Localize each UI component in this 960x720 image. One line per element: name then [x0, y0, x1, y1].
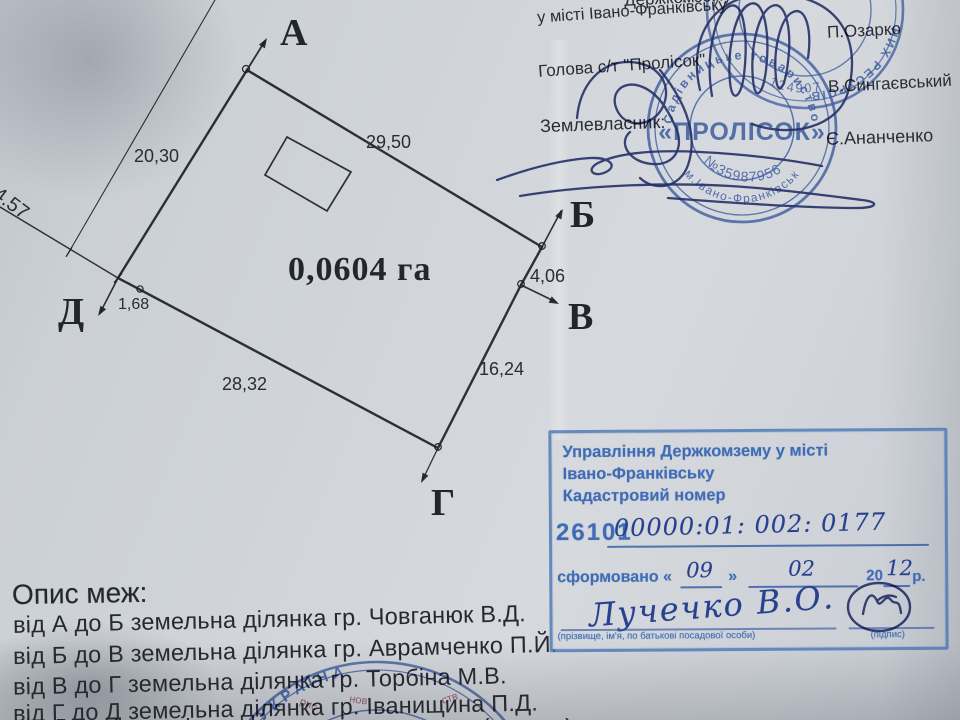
bottom-seal-country-text: УКРАЇНА: [254, 663, 350, 720]
bottom-seal-fragment-1: рис: [298, 696, 319, 714]
ink-signatures: [497, 0, 910, 631]
svg-text:УКРАЇНА: УКРАЇНА: [254, 663, 350, 720]
seal-bottom-partial: УКРАЇНА рис нов ств: [209, 662, 545, 720]
stamps-and-signatures: Садівницьке товариство м.Івано-Франківсь…: [0, 0, 960, 720]
initials-scribble: [863, 595, 901, 614]
bottom-seal-fragment-2: нов: [349, 693, 369, 707]
scanned-land-survey-document: А Б В Г Д 20,30 29,50 4,06 16,24 28,32 1…: [0, 0, 960, 720]
seal-center-name: «ПРОЛІСОК»: [658, 118, 826, 146]
svg-text:№35987956: №35987956: [701, 152, 784, 185]
seal-number-text: №35987956: [701, 152, 784, 185]
bottom-seal-fragment-3: ств: [440, 690, 459, 707]
